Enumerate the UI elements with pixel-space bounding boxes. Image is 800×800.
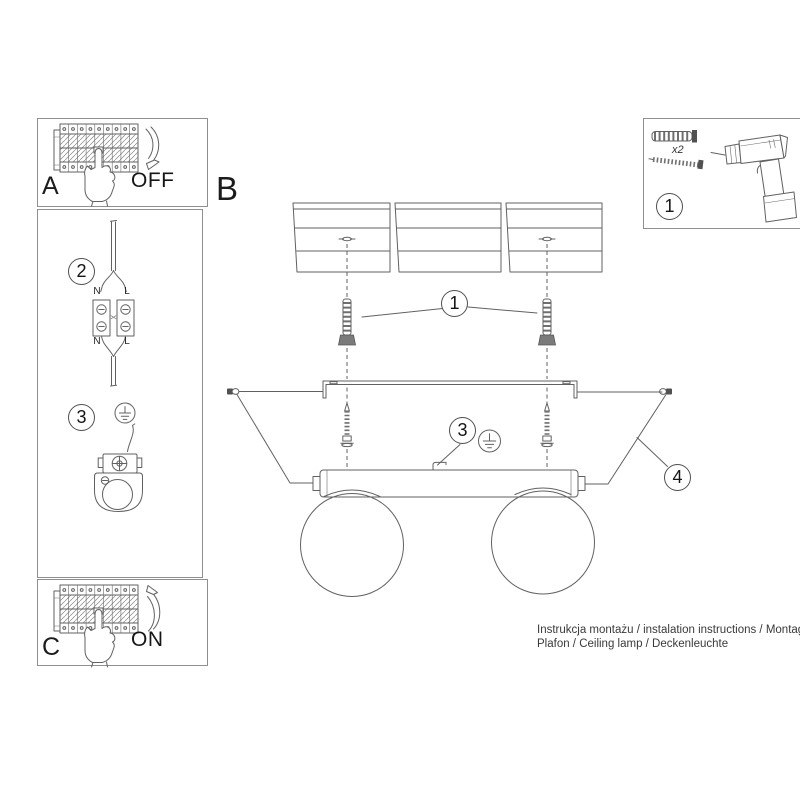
lamp-base-icon [95, 473, 143, 512]
breaker-off-label: OFF [131, 169, 175, 193]
breaker-on-drawing [40, 581, 204, 667]
glass-sphere-icon [301, 490, 404, 597]
section-label-a: A [42, 172, 59, 201]
ground-wire-icon [128, 424, 135, 452]
step-circle-grounding: 3 [68, 404, 95, 431]
callout-circle-ground: 3 [449, 417, 476, 444]
wall-plug-icon [339, 244, 356, 379]
step-circle-tools: 1 [656, 193, 683, 220]
ground-wire-icon [433, 445, 460, 471]
terminal-label-l-bottom: L [121, 336, 133, 347]
step-circle-wiring: 2 [68, 258, 95, 285]
terminal-block-icon [93, 300, 134, 336]
wall-plug-icon [539, 244, 556, 379]
breaker-on-label: ON [131, 628, 164, 652]
lamp-body-icon [313, 470, 585, 497]
mounting-screw-icon [541, 388, 553, 469]
side-screw-icon [227, 389, 239, 395]
wiring-drawing [80, 218, 150, 390]
mounting-screw-icon [341, 388, 353, 469]
footer-product-line: Plafon / Ceiling lamp / Deckenleuchte [537, 637, 800, 651]
instruction-sheet: { "steps": { "breaker_off": { "letter": … [0, 0, 800, 800]
ground-symbol-icon [479, 430, 501, 452]
arrow-down-icon [146, 127, 159, 170]
terminal-label-n-bottom: N [91, 336, 103, 347]
ceiling-icon [293, 203, 602, 272]
supply-cable-icon [101, 221, 127, 292]
mounting-bracket-icon [323, 381, 577, 398]
glass-sphere-icon [492, 488, 595, 594]
main-assembly-drawing [210, 165, 800, 615]
wall-plug-icon [652, 130, 697, 143]
terminal-label-l-top: L [121, 286, 133, 297]
terminal-label-n-top: N [91, 286, 103, 297]
anchor-quantity-label: x2 [672, 144, 684, 156]
breaker-off-drawing [40, 120, 204, 206]
arrow-up-icon [147, 586, 160, 632]
ground-symbol-icon [115, 403, 135, 423]
section-label-c: C [42, 633, 60, 662]
callout-circle-side-screws: 4 [664, 464, 691, 491]
grounding-drawing [85, 400, 155, 518]
ground-terminal-icon [98, 454, 142, 473]
footer-instructions-line: Instrukcja montażu / instalation instruc… [537, 623, 800, 637]
footer: Instrukcja montażu / instalation instruc… [537, 623, 800, 651]
callout-circle-anchors: 1 [441, 290, 468, 317]
